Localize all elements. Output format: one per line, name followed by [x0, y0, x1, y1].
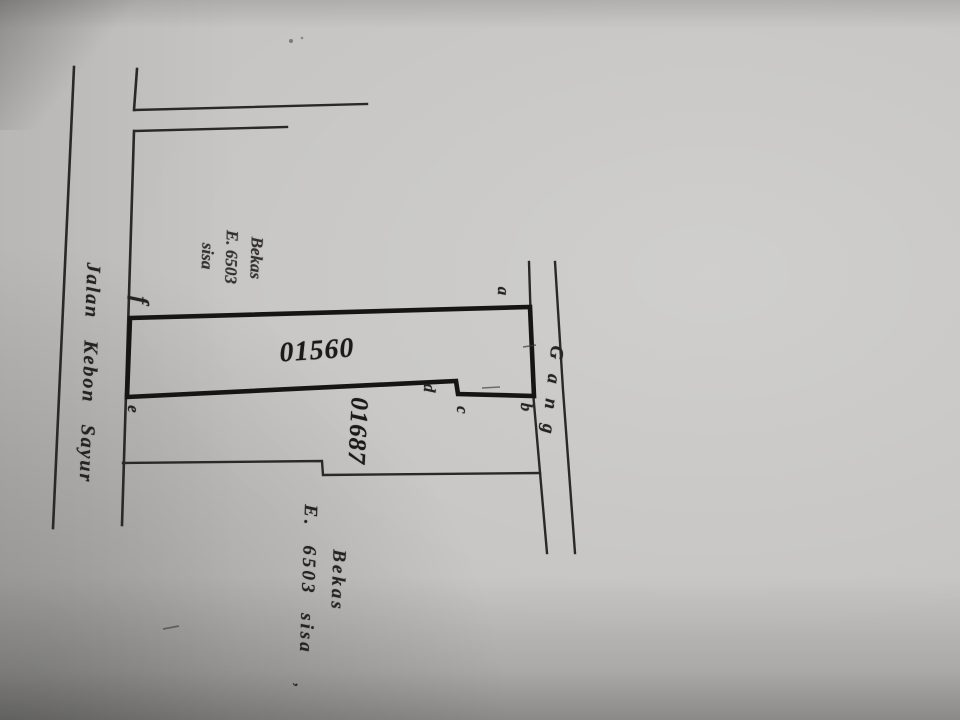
stray-comma-mark: , — [290, 682, 311, 687]
corner-letter-c: c — [452, 406, 472, 414]
upper-note-line2: E. 6503 — [218, 230, 245, 285]
lower-note-line1: Bekas — [319, 505, 355, 656]
corner-letter-b: b — [516, 402, 536, 411]
corner-letter-e: e — [123, 405, 143, 413]
lower-parcel-boundary-line — [123, 461, 540, 475]
scanned-cadastral-sketch: Jalan Kebon Sayur Bekas E. 6503 sisa 015… — [0, 0, 960, 720]
scan-speck — [289, 39, 293, 43]
survey-tick-mark-bottom — [482, 387, 500, 388]
upper-boundary-line-long — [135, 104, 367, 110]
scan-speck-small — [301, 37, 304, 40]
parcel-number-main: 01560 — [278, 332, 355, 369]
road-left-edge-line — [53, 67, 74, 528]
corner-letter-f: f — [125, 296, 152, 305]
upper-note-line1: Bekas — [242, 231, 269, 286]
stray-dash-mark — [163, 626, 179, 629]
plot-sketch-canvas — [0, 0, 960, 720]
upper-note-line3: sisa — [193, 229, 220, 284]
road-right-edge-upper-line — [134, 69, 137, 110]
corner-letter-a: a — [493, 286, 513, 295]
corner-letter-d: d — [419, 383, 439, 392]
upper-boundary-line-short — [135, 127, 287, 131]
parcel-number-adjacent: 01687 — [341, 397, 372, 466]
lower-note-line2: E. 6503 sisa — [289, 504, 325, 655]
